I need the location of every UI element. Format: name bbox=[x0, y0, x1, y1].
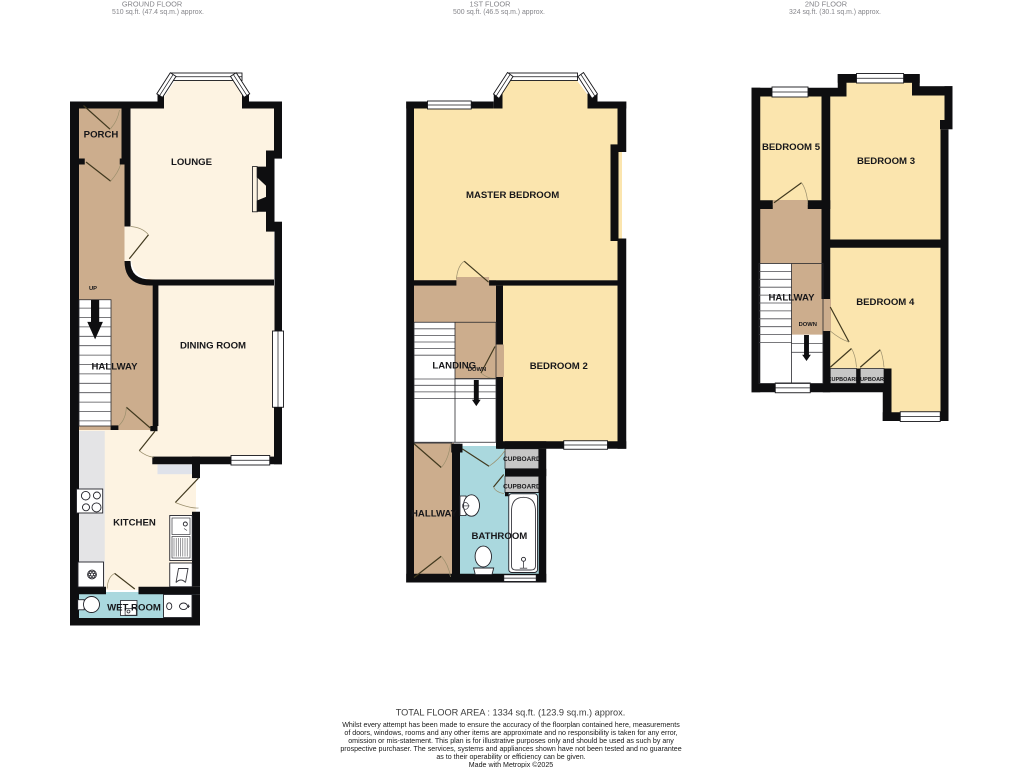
svg-text:HALLWAY: HALLWAY bbox=[411, 509, 458, 520]
svg-text:324 sq.ft. (30.1 sq.m.) approx: 324 sq.ft. (30.1 sq.m.) approx. bbox=[789, 9, 881, 16]
svg-text:BEDROOM 4: BEDROOM 4 bbox=[856, 297, 915, 308]
svg-text:as to their operability or eff: as to their operability or efficiency ca… bbox=[436, 753, 585, 761]
svg-text:PORCH: PORCH bbox=[84, 130, 119, 141]
svg-text:TOTAL FLOOR AREA : 1334 sq.ft.: TOTAL FLOOR AREA : 1334 sq.ft. (123.9 sq… bbox=[396, 708, 626, 718]
svg-text:HALLWAY: HALLWAY bbox=[91, 362, 138, 373]
svg-text:of doors, windows, rooms and a: of doors, windows, rooms and any other i… bbox=[344, 729, 677, 737]
svg-text:Whilst every attempt has been: Whilst every attempt has been made to en… bbox=[342, 721, 680, 729]
svg-text:BEDROOM 5: BEDROOM 5 bbox=[762, 142, 821, 153]
svg-text:omission or mis-statement. Thi: omission or mis-statement. This plan is … bbox=[348, 737, 674, 745]
svg-text:BATHROOM: BATHROOM bbox=[472, 531, 528, 542]
svg-text:DINING ROOM: DINING ROOM bbox=[180, 340, 246, 351]
svg-text:MASTER BEDROOM: MASTER BEDROOM bbox=[466, 190, 559, 201]
svg-text:CUPBOARD: CUPBOARD bbox=[503, 456, 541, 463]
svg-text:BEDROOM 3: BEDROOM 3 bbox=[857, 156, 915, 167]
svg-text:CUPBOARD: CUPBOARD bbox=[828, 377, 860, 383]
svg-text:UP: UP bbox=[89, 286, 97, 292]
svg-text:HALLWAY: HALLWAY bbox=[768, 292, 815, 303]
svg-text:DOWN: DOWN bbox=[468, 367, 486, 373]
svg-text:500 sq.ft. (46.5 sq.m.) approx: 500 sq.ft. (46.5 sq.m.) approx. bbox=[453, 9, 545, 16]
svg-text:prospective purchaser. The ser: prospective purchaser. The services, sys… bbox=[340, 745, 681, 753]
svg-text:Made with Metropix ©2025: Made with Metropix ©2025 bbox=[469, 761, 554, 768]
svg-text:1ST FLOOR: 1ST FLOOR bbox=[470, 0, 511, 8]
svg-text:510 sq.ft. (47.4 sq.m.) approx: 510 sq.ft. (47.4 sq.m.) approx. bbox=[112, 9, 204, 16]
svg-text:CUPBOARD: CUPBOARD bbox=[856, 377, 888, 383]
svg-text:2ND FLOOR: 2ND FLOOR bbox=[805, 0, 847, 8]
svg-text:LOUNGE: LOUNGE bbox=[171, 157, 213, 168]
svg-text:DOWN: DOWN bbox=[799, 322, 817, 328]
svg-text:KITCHEN: KITCHEN bbox=[113, 517, 156, 528]
svg-text:GROUND FLOOR: GROUND FLOOR bbox=[122, 0, 182, 8]
svg-text:BEDROOM 2: BEDROOM 2 bbox=[530, 361, 588, 372]
svg-text:CUPBOARD: CUPBOARD bbox=[503, 484, 541, 491]
svg-text:WET ROOM: WET ROOM bbox=[107, 602, 161, 613]
